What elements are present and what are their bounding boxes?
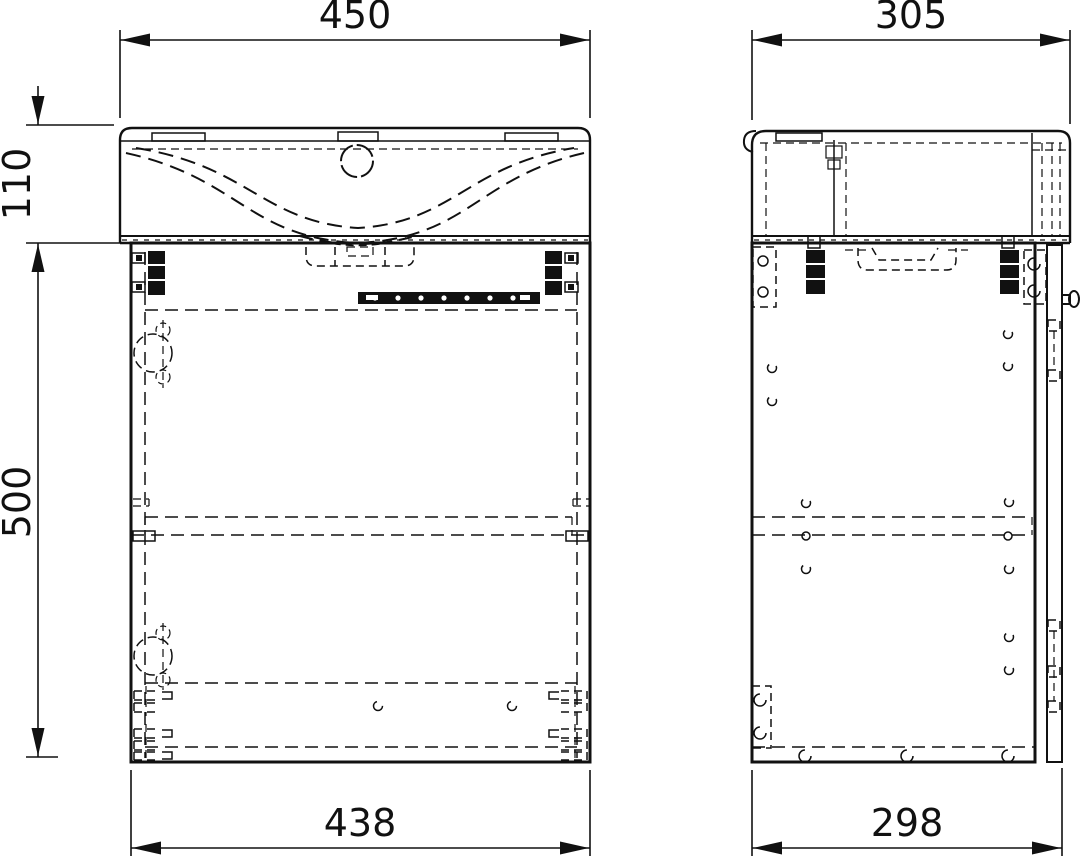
- edge-plate-bottom-left: [752, 686, 771, 748]
- dim-cabinet-depth: 298: [752, 768, 1062, 856]
- fixing-block-left: [806, 236, 825, 294]
- drawing-canvas: 450 305 110 500: [0, 0, 1080, 861]
- bottom-side-hidden: [752, 747, 1035, 762]
- bottom-screw-holes-front: [374, 702, 517, 711]
- door-knob: [1062, 291, 1079, 307]
- dim-basin-depth-label: 305: [875, 0, 948, 37]
- tap-hole: [341, 145, 373, 177]
- dim-basin-height: 110: [0, 86, 126, 243]
- drain-front-hidden: [306, 247, 414, 266]
- basin-bowl-curves: [126, 148, 584, 246]
- corner-fittings-left: [134, 686, 172, 762]
- basin-front-outline: [120, 128, 590, 243]
- dim-basin-height-label: 110: [0, 148, 39, 221]
- hinge-plate-left: [132, 251, 165, 295]
- dim-cabinet-height-label: 500: [0, 466, 39, 539]
- fixing-block-right: [1000, 236, 1019, 294]
- hinge-cup-top: [134, 320, 172, 388]
- hinge-cup-bottom: [134, 623, 172, 690]
- cabinet-side-outline: [752, 243, 1035, 762]
- edge-plate-top-left: [753, 247, 776, 307]
- corner-fittings-right: [549, 686, 587, 762]
- door-edge-brackets: [1048, 320, 1060, 712]
- dim-cabinet-width-label: 438: [324, 801, 397, 845]
- dim-basin-width-label: 450: [319, 0, 392, 37]
- basin-side-outline: [744, 131, 1070, 243]
- hinge-plate-right: [545, 251, 578, 295]
- drain-side-hidden: [845, 248, 968, 270]
- shelf-side-hidden: [752, 517, 1032, 535]
- front-view: [120, 128, 590, 762]
- screw-marks-side: [768, 330, 1014, 675]
- dim-cabinet-height: 500: [0, 243, 58, 757]
- cabinet-front-hidden-edges: [145, 252, 577, 758]
- technical-drawing: 450 305 110 500: [0, 0, 1080, 861]
- dim-basin-width: 450: [120, 0, 590, 118]
- side-view: [744, 131, 1079, 762]
- cabinet-front-outline: [131, 243, 590, 762]
- dim-cabinet-width: 438: [131, 770, 590, 856]
- dim-cabinet-depth-label: 298: [871, 801, 944, 845]
- dim-basin-depth: 305: [752, 0, 1070, 124]
- mounting-rail: [358, 292, 540, 304]
- shelf-front-hidden: [131, 499, 590, 541]
